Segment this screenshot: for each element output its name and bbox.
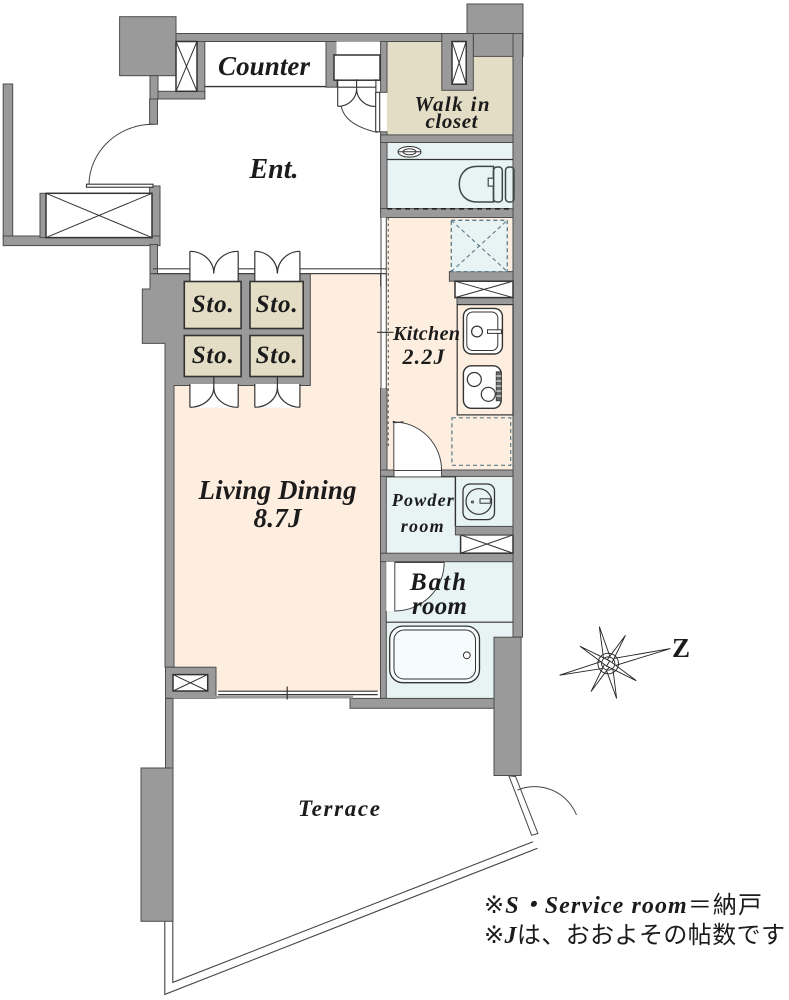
svg-text:※Jは、おおよその帖数です: ※Jは、おおよその帖数です xyxy=(484,922,785,949)
svg-text:Ent.: Ent. xyxy=(248,154,298,185)
svg-text:Kitchen: Kitchen xyxy=(392,323,460,345)
svg-text:Sto.: Sto. xyxy=(256,291,298,318)
svg-text:※S・Service room＝納戸: ※S・Service room＝納戸 xyxy=(484,892,762,919)
svg-text:closet: closet xyxy=(426,109,479,133)
svg-text:8.7J: 8.7J xyxy=(254,503,304,533)
svg-text:room: room xyxy=(412,593,467,620)
svg-text:Sto.: Sto. xyxy=(256,342,298,369)
svg-text:Z: Z xyxy=(672,633,690,663)
svg-text:Bath: Bath xyxy=(409,569,466,596)
svg-text:Living Dining: Living Dining xyxy=(198,475,357,505)
svg-text:Counter: Counter xyxy=(218,51,310,81)
svg-text:Sto.: Sto. xyxy=(192,291,234,318)
svg-text:room: room xyxy=(401,516,444,536)
svg-text:Powder: Powder xyxy=(391,490,455,510)
svg-text:2.2J: 2.2J xyxy=(402,344,446,369)
svg-text:Sto.: Sto. xyxy=(192,342,234,369)
